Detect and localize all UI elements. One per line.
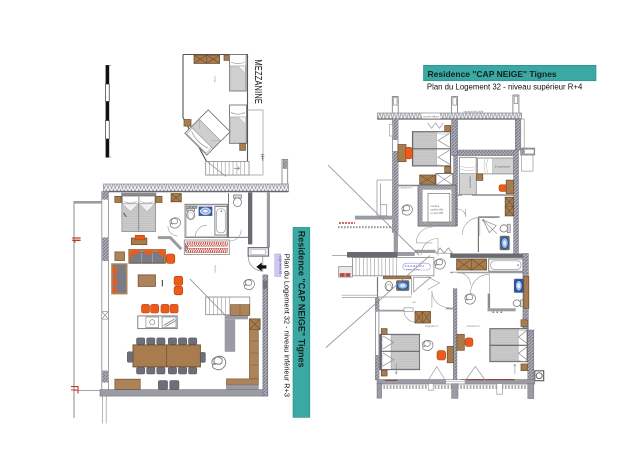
svg-text:monteé: monteé (431, 204, 440, 208)
svg-text:chambre 2: chambre 2 (425, 324, 439, 328)
svg-text:s mois 185: s mois 185 (431, 211, 444, 215)
svg-text:superposé: superposé (469, 176, 473, 189)
svg-text:séjour: séjour (214, 265, 218, 273)
svg-text:MEZZANINE: MEZZANINE (253, 60, 264, 104)
svg-text:Residence "CAP NEIGE" Tignes: Residence "CAP NEIGE" Tignes (428, 69, 557, 79)
svg-text:wc: wc (413, 300, 417, 304)
svg-text:chambre 3: chambre 3 (467, 324, 481, 328)
svg-text:lit superposé: lit superposé (495, 165, 510, 169)
svg-text:confort d'ét: confort d'ét (431, 208, 444, 212)
svg-text:Residence "CAP NEIGE" Tignes: Residence "CAP NEIGE" Tignes (296, 231, 306, 368)
svg-text:Plan du Logement 32 - niveau s: Plan du Logement 32 - niveau supérieur R… (427, 82, 583, 91)
svg-text:e-s-c-a-l-i-e-r: e-s-c-a-l-i-e-r (405, 264, 425, 268)
svg-text:séchoir/ski l'affe: séchoir/ski l'affe (464, 110, 484, 114)
svg-text:corvée Alpes: corvée Alpes (423, 115, 440, 119)
svg-text:Logement 32: Logement 32 (278, 256, 282, 275)
svg-text:7 mez: 7 mez (213, 76, 217, 84)
svg-text:Plan du Logement 32 - niveau i: Plan du Logement 32 - niveau inférieur R… (283, 254, 292, 397)
